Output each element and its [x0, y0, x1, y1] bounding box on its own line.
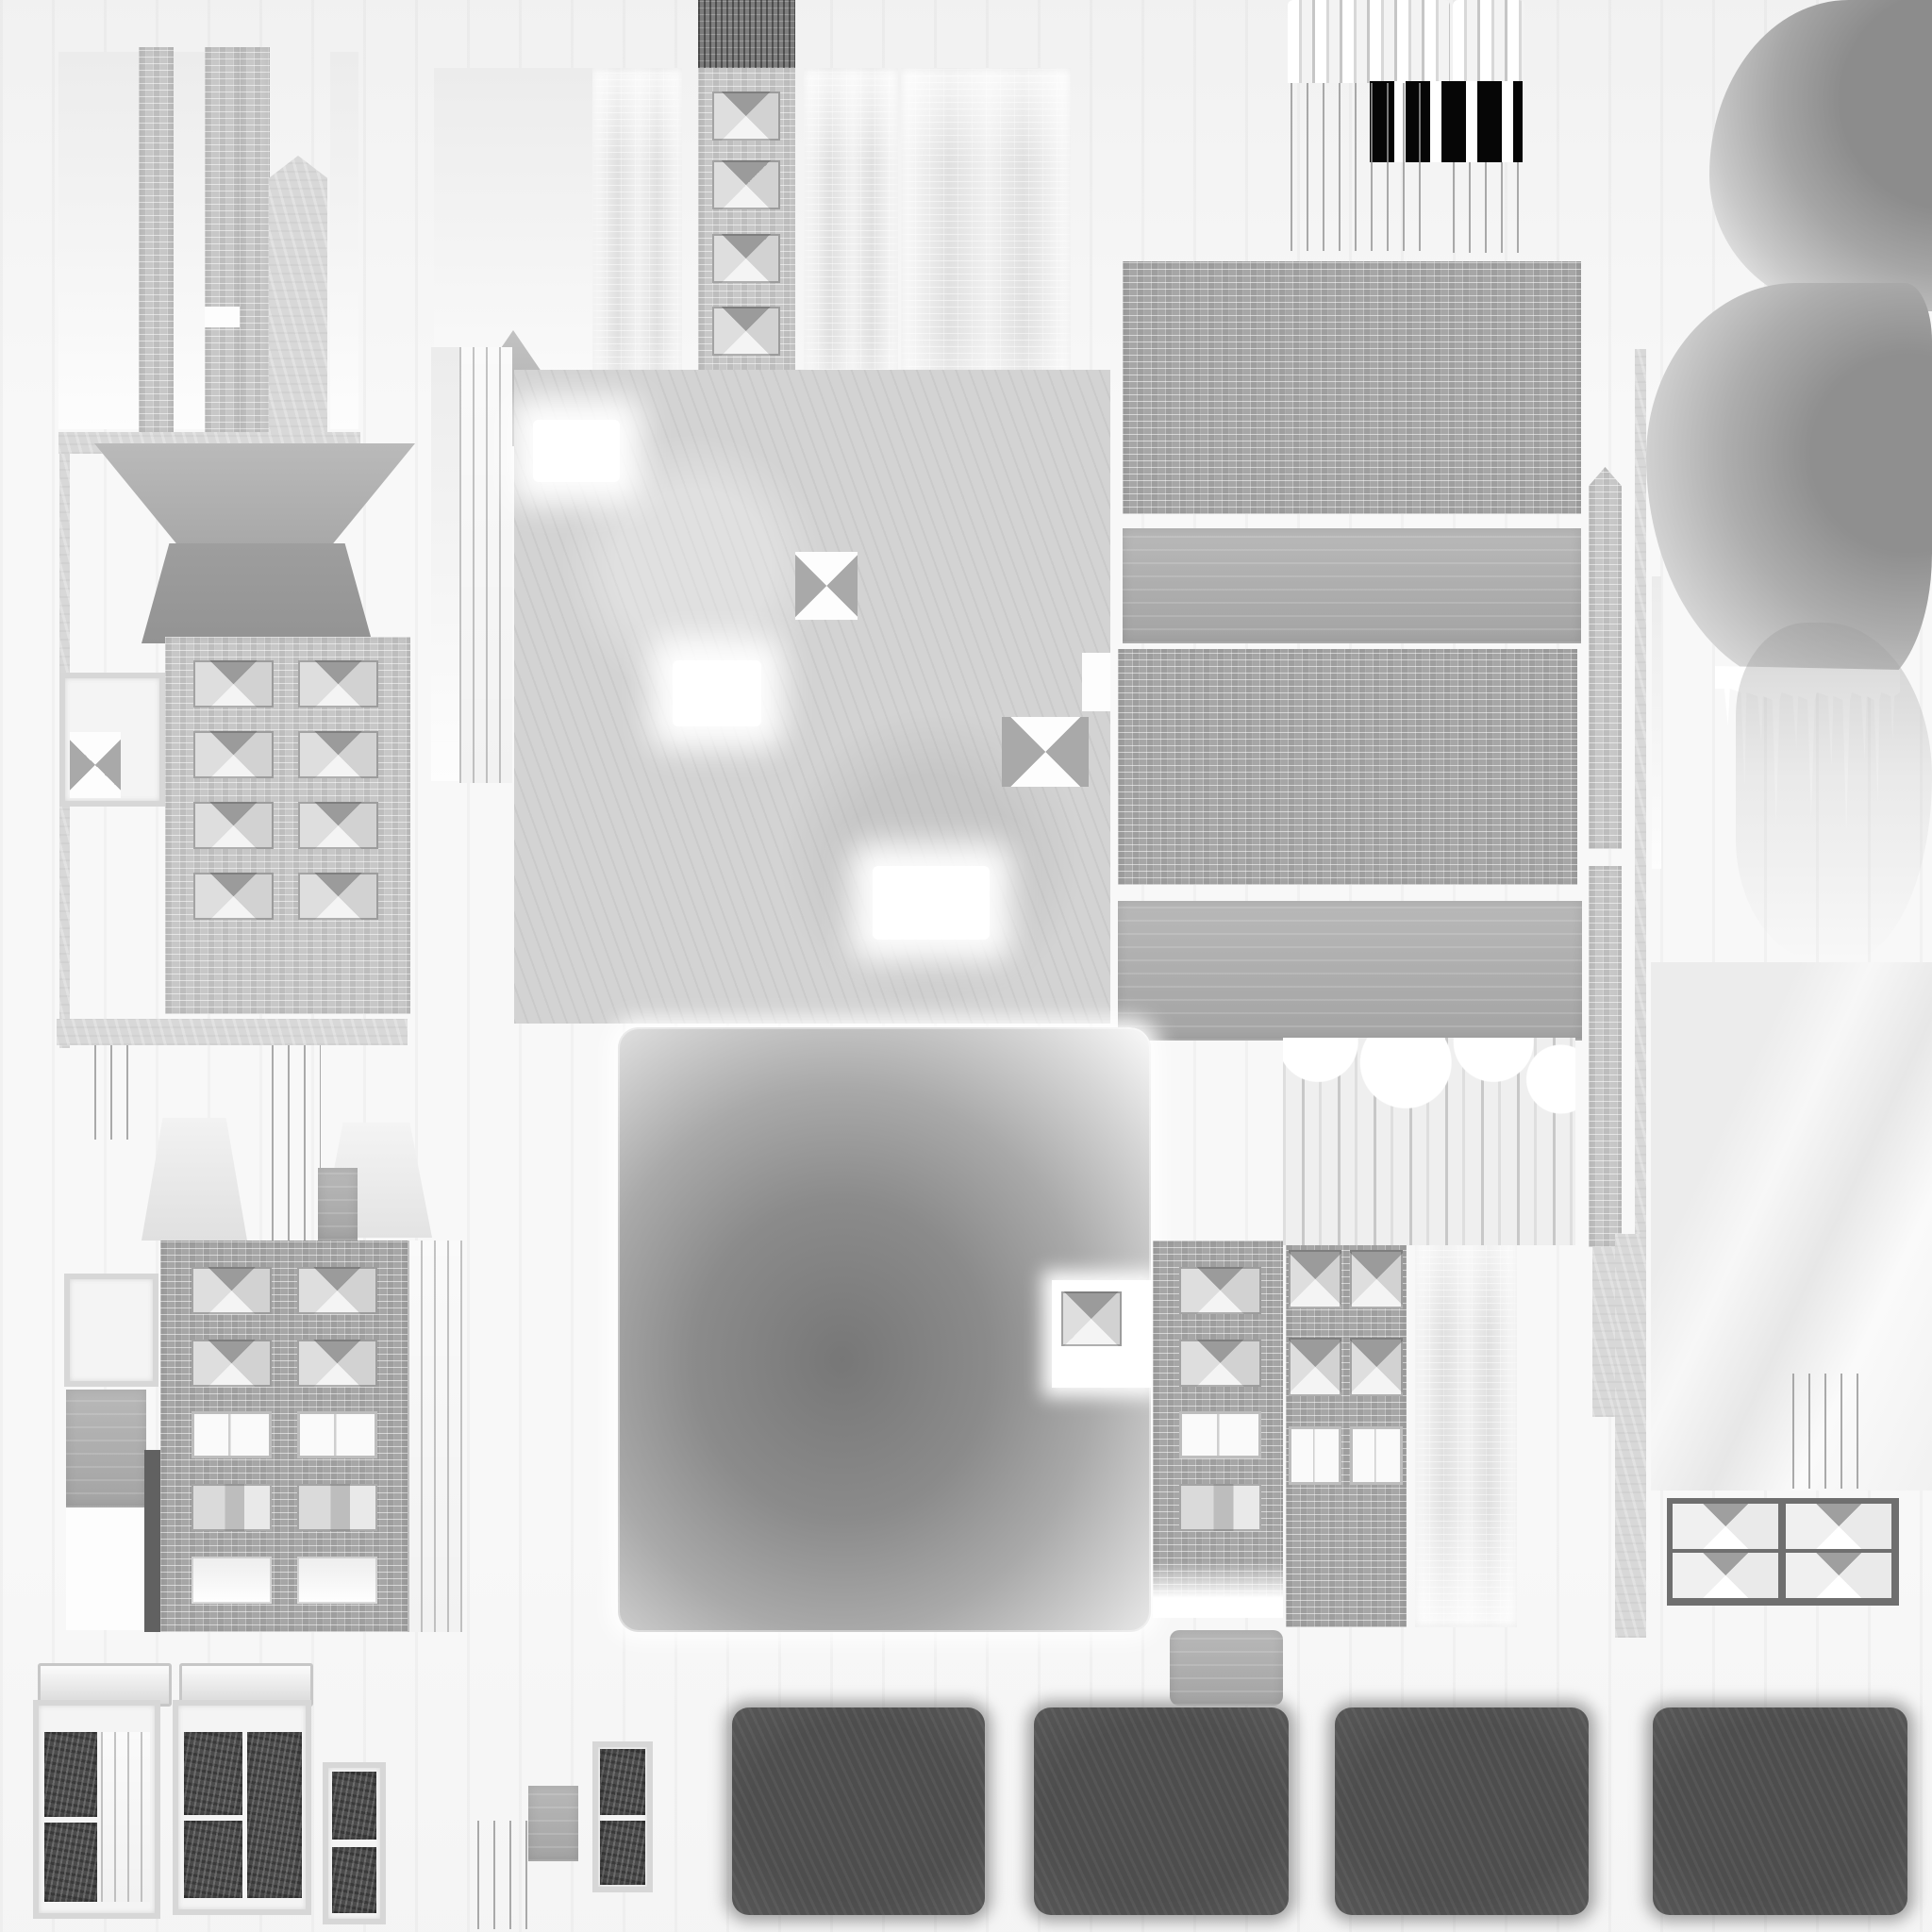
brick-column-bright	[1415, 1226, 1517, 1627]
facade-right-narrow	[1153, 1241, 1283, 1618]
baluster-row-a	[1288, 0, 1450, 83]
bowtie-window	[298, 802, 378, 849]
white-frame-window	[1289, 1426, 1341, 1485]
pane-window	[1179, 1484, 1261, 1531]
vignette-floor-island	[618, 1027, 1151, 1632]
window-glow	[533, 420, 620, 482]
marble-wall-island	[514, 370, 1110, 1024]
ledge-bar-middle	[57, 1019, 408, 1045]
glass-pane	[44, 1823, 97, 1902]
bowtie-window	[193, 660, 274, 708]
glass-pane	[44, 1732, 97, 1817]
white-frame-window	[297, 1411, 377, 1458]
brick-slab-upper	[1123, 261, 1581, 514]
window-frame-glass-b	[173, 1700, 311, 1915]
bowtie-window	[712, 307, 780, 356]
grid-window	[1786, 1504, 1891, 1549]
bowtie-window	[1179, 1267, 1261, 1314]
brick-strip-a	[139, 47, 174, 434]
bowtie-window	[1350, 1250, 1403, 1308]
frame-box-left	[64, 1274, 158, 1387]
bowtie-window	[193, 802, 274, 849]
pane-window	[297, 1484, 377, 1531]
window-column-frame	[459, 347, 512, 783]
chimney-lower	[1589, 866, 1622, 1247]
brick-slab-lower	[1118, 649, 1577, 885]
window-glow	[673, 660, 761, 726]
window-frame-glass-a	[33, 1700, 160, 1919]
roof-trapezoid-b	[142, 543, 373, 643]
baluster-row-b	[1453, 0, 1524, 81]
bowtie-window	[1289, 1338, 1341, 1396]
candelabra-sticks	[1792, 1374, 1870, 1489]
facade-lower-left	[160, 1241, 408, 1632]
texture-atlas-canvas	[0, 0, 1932, 1932]
bowtie-notch	[795, 552, 858, 620]
white-frame-window	[1350, 1426, 1403, 1485]
marble-slab-left	[66, 1390, 146, 1507]
bowtie-window	[712, 234, 780, 283]
glass-pane	[332, 1772, 376, 1840]
stone-slab-lower	[1118, 901, 1582, 1041]
thin-strip-right	[1652, 576, 1661, 869]
striped-strip-a	[272, 1045, 321, 1241]
light-window	[192, 1557, 272, 1604]
pillar-skyline-cluster	[1283, 1038, 1575, 1245]
brick-strip-d	[240, 47, 270, 436]
stone-slab-upper	[1123, 528, 1581, 643]
corner-notch	[1052, 1280, 1151, 1388]
light-fold-polygon	[1651, 962, 1932, 1491]
glass-pane	[332, 1847, 376, 1913]
frame-bowtie	[70, 732, 121, 798]
radial-blob-low	[1736, 623, 1932, 962]
pane-pair	[592, 1741, 653, 1892]
corner-frame-box	[59, 673, 165, 807]
grid-window	[1673, 1553, 1778, 1598]
mortar-gap	[205, 307, 240, 327]
dark-floor-square-1	[732, 1707, 985, 1915]
pane-window	[192, 1484, 272, 1531]
facade-footing-bits	[1170, 1630, 1283, 1706]
facade-upper-left	[165, 637, 410, 1014]
bowtie-window	[1179, 1340, 1261, 1387]
bowtie-window	[297, 1340, 377, 1387]
glass-pane	[184, 1732, 242, 1815]
chimney-pointed	[1589, 467, 1622, 849]
thin-vertical-line	[1635, 349, 1646, 1385]
bowtie-window	[192, 1340, 272, 1387]
gray-square-small	[528, 1786, 578, 1861]
window-grid-2x2	[1667, 1498, 1899, 1606]
bowtie-notch	[1002, 717, 1089, 787]
bowtie-window	[192, 1267, 272, 1314]
striped-pane	[101, 1732, 150, 1902]
marble-pillar-pointed	[269, 156, 327, 436]
white-frame-window	[192, 1411, 272, 1458]
pillar-bits	[477, 1821, 532, 1929]
glass-pane	[600, 1821, 645, 1885]
notch-window	[1061, 1291, 1122, 1346]
glass-pane	[600, 1749, 645, 1815]
bowtie-window	[193, 731, 274, 778]
edge-step-cut	[1082, 653, 1110, 711]
dark-parapet	[698, 0, 795, 68]
grid-window	[1673, 1504, 1778, 1549]
brick-strip-c	[205, 47, 240, 436]
glass-pane	[247, 1732, 302, 1898]
baluster-rods-b	[1453, 162, 1524, 253]
facade-right-2col	[1286, 1226, 1407, 1627]
striped-strip-b	[94, 1045, 132, 1140]
bowtie-window	[297, 1267, 377, 1314]
grid-window	[1786, 1553, 1891, 1598]
bowtie-window	[298, 731, 378, 778]
baluster-rods-a	[1291, 83, 1432, 251]
pale-strip-e	[330, 52, 358, 429]
white-slab-left	[66, 1507, 146, 1630]
dark-edge-strip	[144, 1450, 160, 1632]
dark-floor-square-4	[1653, 1707, 1907, 1915]
light-window	[297, 1557, 377, 1604]
column-strips-right	[408, 1241, 462, 1632]
bowtie-window	[298, 660, 378, 708]
pane-column-partial	[323, 1762, 386, 1924]
gradient-strip-a	[58, 52, 139, 429]
glow-band	[1153, 1561, 1283, 1618]
pillar-strip-pale	[431, 347, 459, 781]
bowtie-window	[1289, 1250, 1341, 1308]
bowtie-window	[1350, 1338, 1403, 1396]
gray-block-small	[318, 1168, 358, 1241]
window-glow	[873, 866, 990, 940]
marble-strip-right	[1615, 1234, 1646, 1638]
white-frame-window	[1179, 1411, 1261, 1458]
bowtie-window	[712, 160, 780, 209]
glass-pane	[184, 1821, 242, 1898]
bowtie-window	[298, 873, 378, 920]
dark-floor-square-2	[1034, 1707, 1289, 1915]
bowtie-window	[193, 873, 274, 920]
pale-strip-b	[174, 52, 205, 429]
dark-floor-square-3	[1335, 1707, 1589, 1915]
bowtie-window	[712, 92, 780, 141]
